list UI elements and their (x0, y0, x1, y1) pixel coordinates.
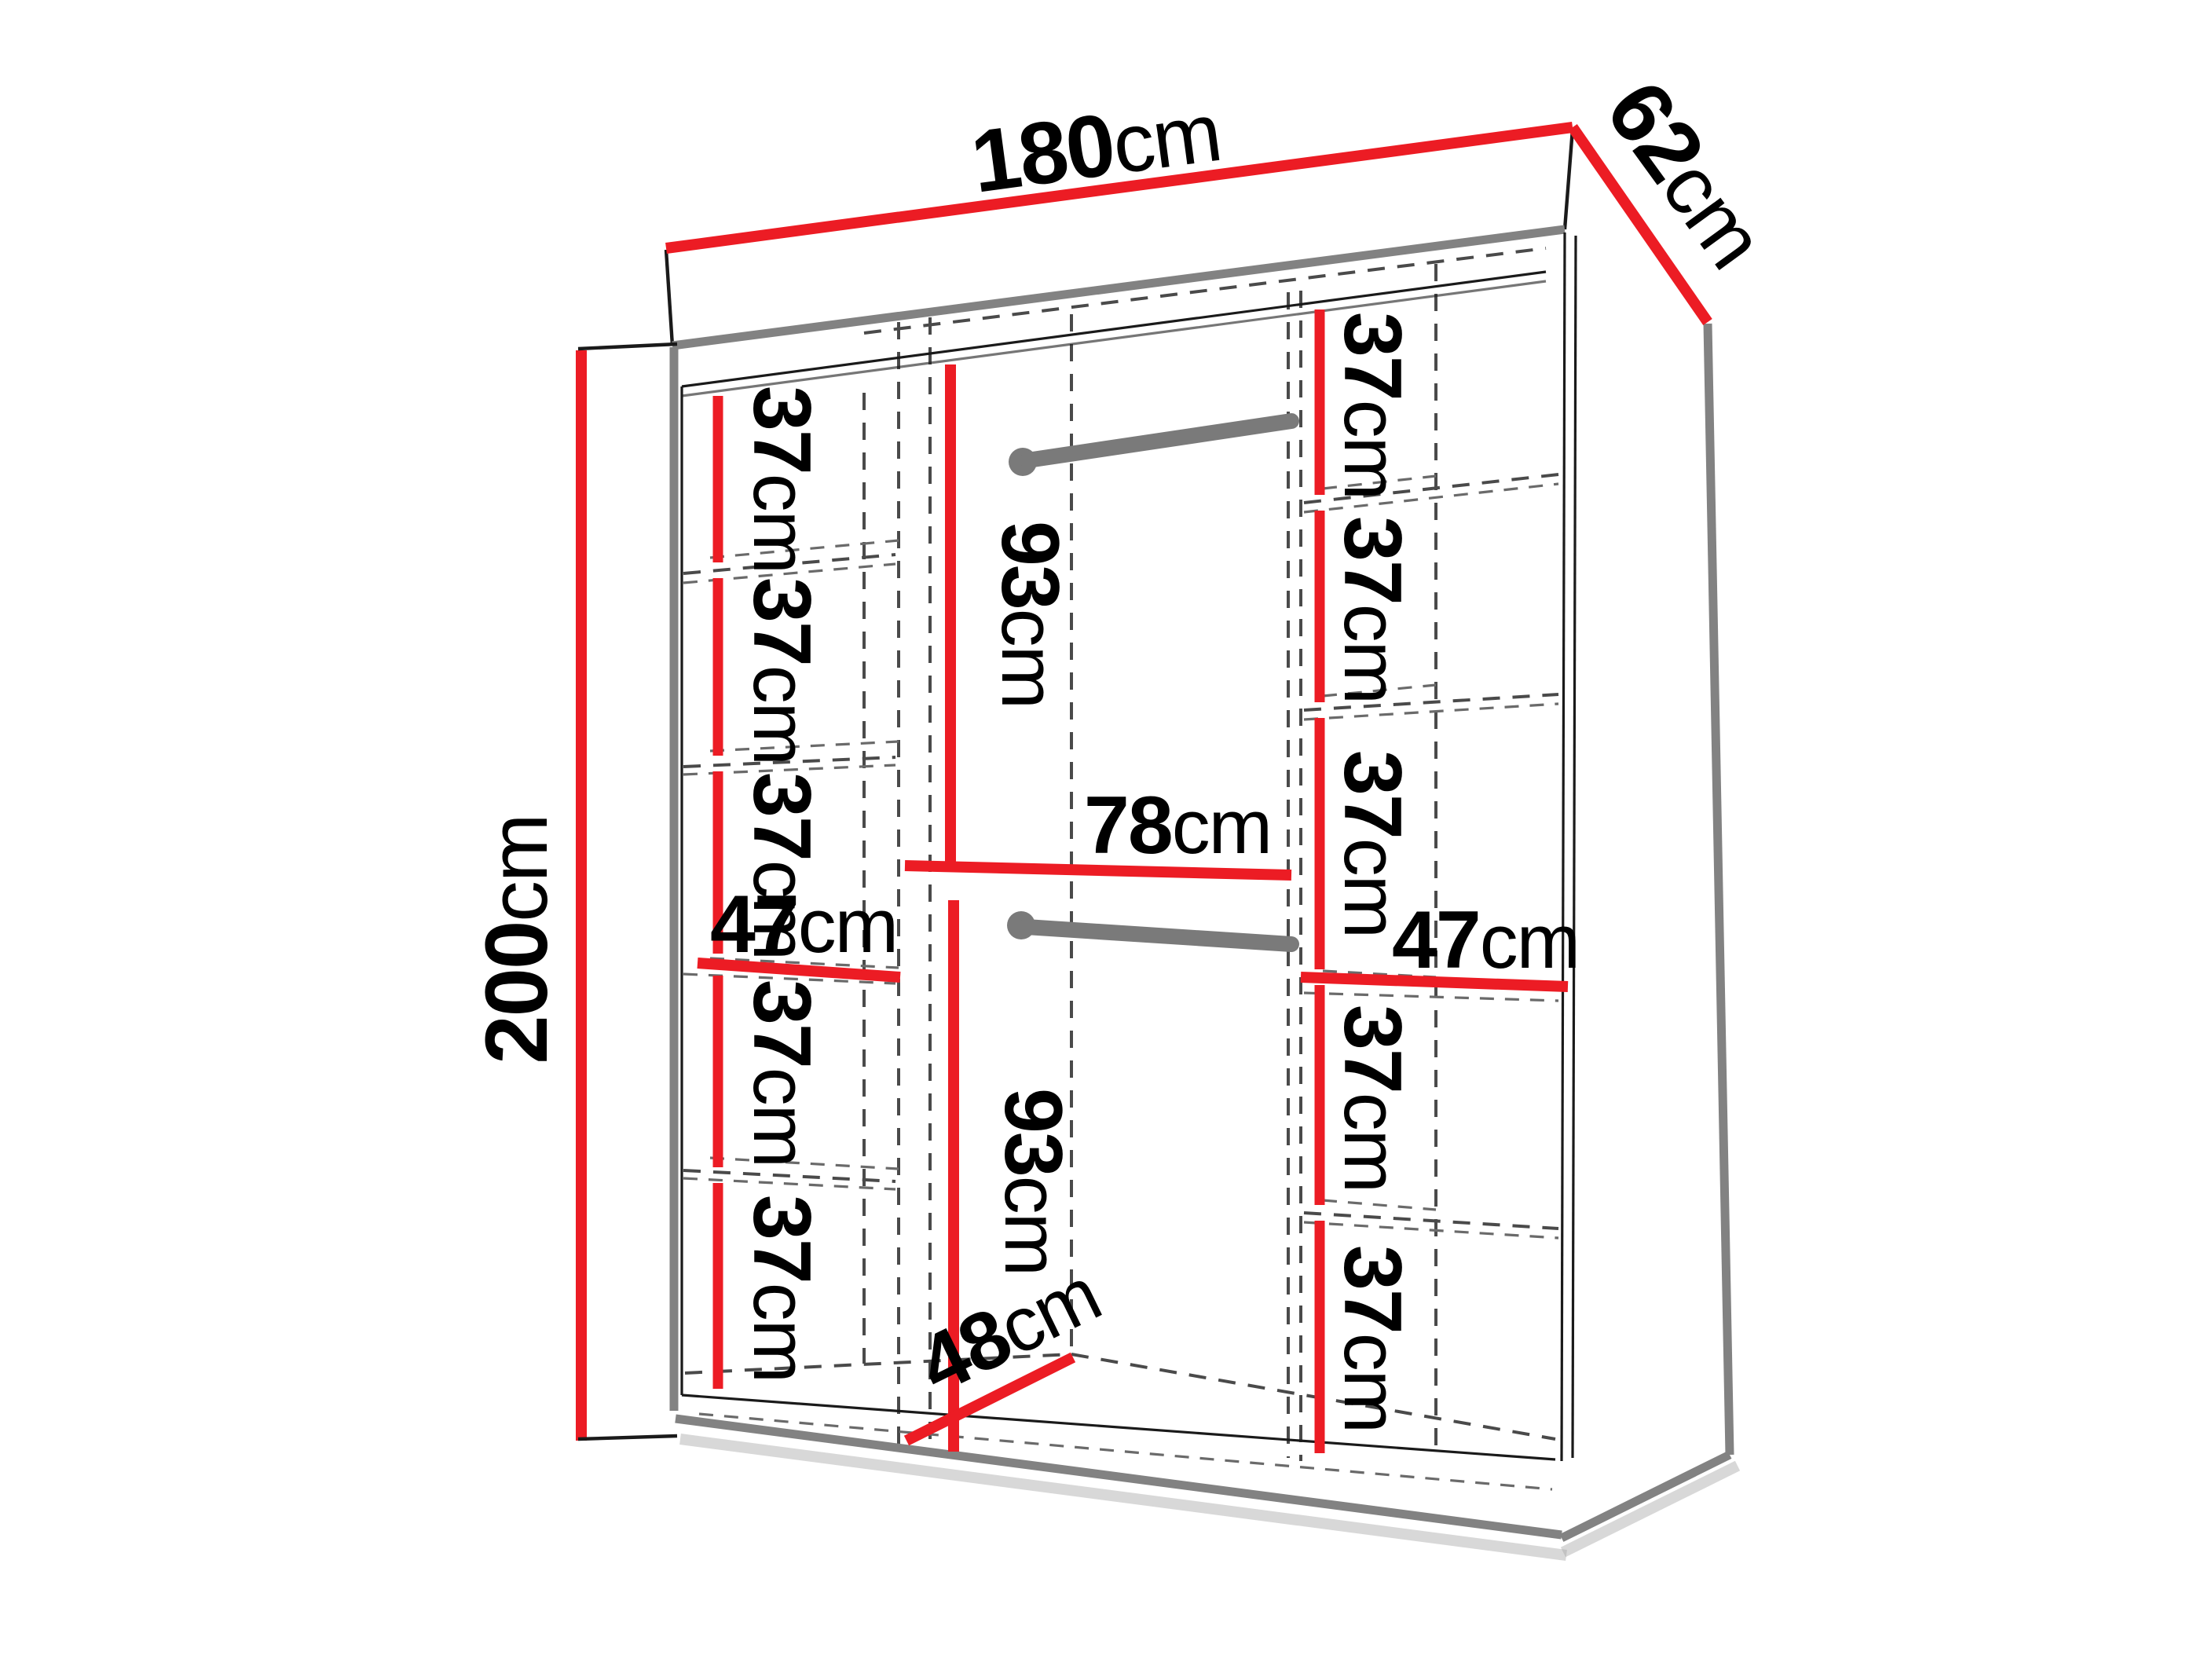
left-column-width-label: 47cm (710, 879, 897, 970)
wardrobe-dimension-diagram: 180cm 62cm 200cm 37cm 37cm 37cm 37cm 37c… (0, 0, 2212, 1659)
left-shelf-label-1: 37cm (736, 386, 827, 573)
right-column-width-label: 47cm (1392, 895, 1579, 986)
middle-width-label: 78cm (1084, 780, 1271, 871)
left-shelf-label-2: 37cm (736, 577, 827, 764)
right-shelf-label-2: 37cm (1327, 516, 1418, 703)
height-value: 200 (467, 922, 566, 1064)
diagram-stage: 180cm 62cm 200cm 37cm 37cm 37cm 37cm 37c… (0, 0, 2212, 1659)
width-unit: cm (1108, 86, 1226, 192)
right-shelf-label-5: 37cm (1327, 1245, 1418, 1432)
height-dim-bottom-tick (578, 1436, 677, 1439)
upper-hanging-label: 93cm (984, 521, 1075, 708)
right-shelf-label-4: 37cm (1327, 1005, 1418, 1192)
left-shelf-label-4: 37cm (736, 980, 827, 1166)
right-shelf-label-1: 37cm (1327, 312, 1418, 499)
height-label: 200cm (467, 815, 566, 1064)
left-shelf-label-5: 37cm (736, 1195, 827, 1382)
lower-hanging-label: 93cm (987, 1088, 1079, 1275)
height-unit: cm (473, 815, 565, 921)
height-dim-top-tick (578, 344, 677, 349)
width-value: 180 (965, 95, 1119, 211)
